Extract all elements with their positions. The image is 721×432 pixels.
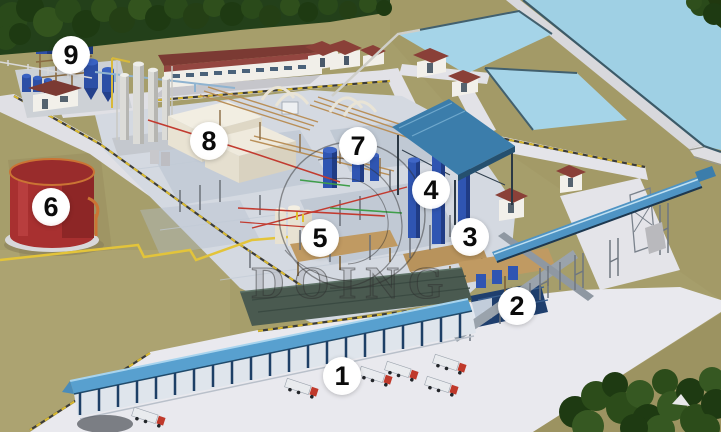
marker-6: 6 [32,188,70,226]
marker-7: 7 [339,127,377,165]
marker-4: 4 [412,171,450,209]
marker-9: 9 [52,36,90,74]
number-markers: 123456789 [0,0,721,432]
plant-3d-overview: DOING 123456789 [0,0,721,432]
marker-5: 5 [301,219,339,257]
marker-1: 1 [323,357,361,395]
marker-3: 3 [451,218,489,256]
marker-2: 2 [498,287,536,325]
marker-8: 8 [190,122,228,160]
